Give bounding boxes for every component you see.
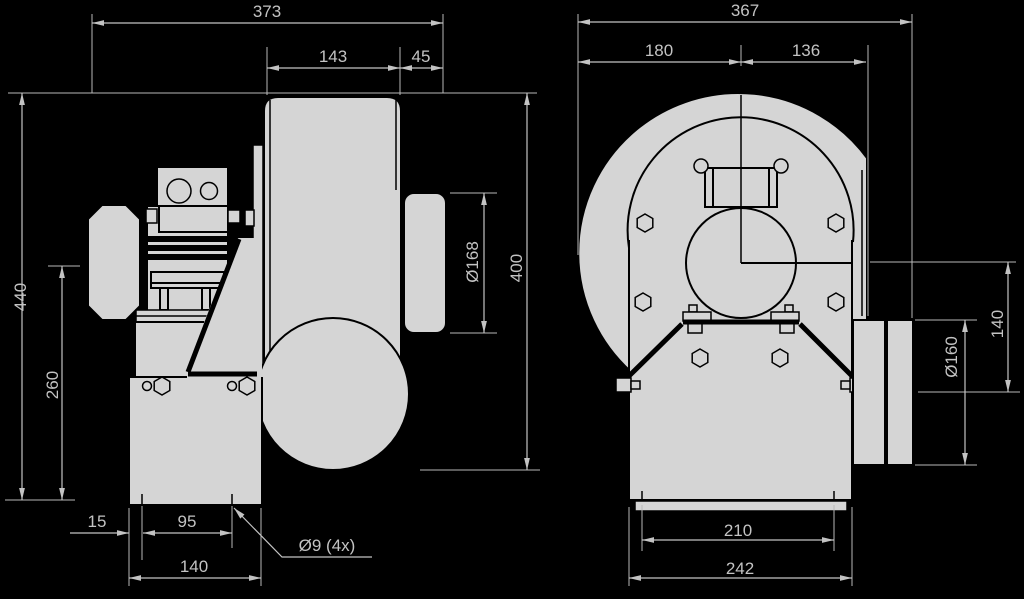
motor-fin: [147, 245, 227, 251]
dim-label-foot-edge: 15: [88, 512, 107, 531]
dim-label-base-width: 242: [726, 559, 754, 578]
dim-label-axis-to-outlet: 140: [988, 310, 1007, 338]
plate-bolt-upper: [245, 210, 254, 226]
side-bolt-stem-left: [631, 381, 640, 389]
inlet-flange-side: [404, 193, 446, 333]
outlet-pipe-front: [853, 320, 885, 465]
hex-bolt: [828, 214, 844, 232]
front-view: [578, 93, 913, 511]
dim-label-hole-note: Ø9 (4x): [299, 536, 356, 555]
side-bolt-stem-right: [841, 381, 850, 389]
dim-label-foot-width: 140: [180, 557, 208, 576]
motor-fan-cowl: [88, 205, 140, 320]
outlet-flange-front: [887, 320, 913, 465]
dim-label-outlet-diameter: Ø160: [942, 336, 961, 378]
dim-label-overall-width-front: 367: [731, 1, 759, 20]
dim-label-foot-holes: 95: [178, 512, 197, 531]
hex-nut: [239, 377, 255, 395]
hex-bolt: [635, 293, 651, 311]
drawing-canvas: 373 143 45 440 260 Ø168 400 15 95 140 Ø9…: [0, 0, 1024, 599]
hex-bolt: [637, 214, 653, 232]
mount-bolt-stem: [689, 305, 697, 312]
cable-gland-large: [167, 179, 191, 203]
dim-label-base-holes: 210: [724, 521, 752, 540]
hex-bolt: [828, 293, 844, 311]
fan-technical-drawing: 373 143 45 440 260 Ø168 400 15 95 140 Ø9…: [0, 0, 1024, 599]
base-strip: [635, 501, 847, 511]
dim-label-axis-height: 260: [43, 371, 62, 399]
cable-gland-small: [201, 183, 218, 200]
dim-label-inlet-diameter: Ø168: [463, 241, 482, 283]
bracket-bolt-right: [774, 159, 788, 173]
base-hole-right: [228, 382, 237, 391]
hex-bolt: [772, 349, 788, 367]
dim-label-housing-width: 143: [319, 47, 347, 66]
base-hole-left: [143, 382, 152, 391]
hex-bolt: [692, 349, 708, 367]
dim-label-outlet-drop: 400: [507, 254, 526, 282]
dim-label-overall-height: 440: [11, 283, 30, 311]
hex-nut: [154, 377, 170, 395]
motor-tab-right: [228, 210, 240, 223]
mount-bolt-stem: [785, 305, 793, 312]
motor-fin: [147, 254, 227, 260]
motor-fin: [147, 236, 227, 242]
dim-label-left-of-axis: 180: [645, 41, 673, 60]
dim-label-overall-width-side: 373: [253, 2, 281, 21]
side-bolt-head-left: [616, 378, 631, 392]
motor-tab-left: [146, 209, 157, 223]
dim-label-inlet-offset: 45: [412, 47, 431, 66]
outlet-pipe-side: [257, 318, 409, 470]
bracket-bolt-left: [694, 159, 708, 173]
dim-label-right-of-axis: 136: [792, 41, 820, 60]
